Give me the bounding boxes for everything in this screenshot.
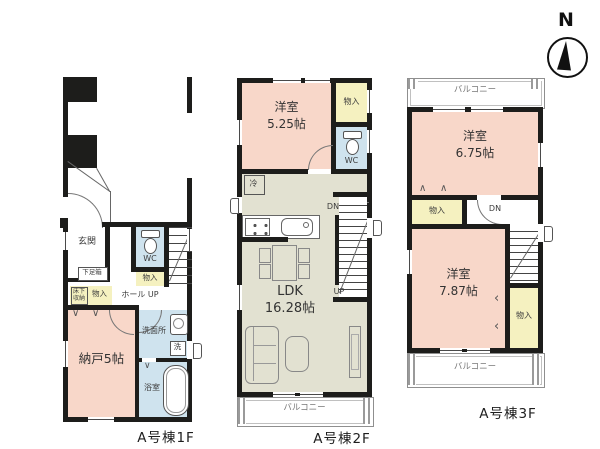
- toilet-icon: [343, 131, 362, 139]
- window: [407, 250, 412, 274]
- ldk-size: 16.28帖: [245, 302, 335, 317]
- window: [88, 417, 114, 422]
- exterior-door: [230, 198, 239, 214]
- folding-door-mark: ∨: [72, 309, 79, 319]
- balcony-label: バルコニー: [407, 86, 543, 96]
- bedroom-label: 洋室: [242, 101, 331, 115]
- floor2-name: A号棟2F: [312, 427, 372, 447]
- folding-door-mark: ∨: [92, 309, 99, 319]
- porch-line: [110, 191, 111, 222]
- exterior-door: [544, 226, 553, 242]
- folding-door-mark: ‹: [494, 292, 499, 305]
- wc-label: WC: [336, 156, 367, 165]
- hall-text: ホール: [121, 290, 145, 299]
- bedroom-675-size: 6.75帖: [412, 147, 538, 161]
- window: [273, 78, 301, 83]
- wall: [462, 200, 467, 224]
- down-label: DN: [483, 204, 507, 213]
- bedroom-675-label: 洋室: [412, 130, 538, 144]
- wall: [242, 237, 288, 242]
- hall-closet-label: 物入: [88, 290, 111, 299]
- window: [63, 232, 68, 250]
- door-opening: [367, 218, 372, 238]
- exterior-door: [193, 343, 202, 359]
- wc-label: WC: [136, 254, 164, 263]
- chair: [259, 248, 271, 263]
- closet2-label: 物入: [510, 311, 538, 320]
- sofa-back-line: [253, 327, 254, 381]
- chair: [298, 264, 310, 279]
- floor-plan-canvas: 玄関 下足箱 WC 物入 ホール UP 床下収納 物入 ∨ ∨ 納戸5帖 洗面所: [0, 0, 600, 449]
- exterior-door: [373, 220, 382, 236]
- window: [433, 107, 465, 112]
- up-text: UP: [148, 290, 159, 299]
- window: [471, 107, 503, 112]
- window: [237, 285, 242, 310]
- wall: [333, 297, 368, 302]
- underfloor-storage-label: 床下収納: [71, 288, 87, 302]
- bathroom-label: 浴室: [140, 383, 164, 392]
- window: [63, 341, 68, 367]
- window: [187, 229, 192, 251]
- faucet-icon: [303, 222, 309, 228]
- door-opening: [538, 224, 543, 242]
- sofa-cushion-line: [254, 363, 276, 364]
- window: [538, 143, 543, 167]
- balcony-label: バルコニー: [407, 363, 543, 373]
- compass: N: [543, 10, 589, 80]
- floor1-name: A号棟1F: [136, 426, 196, 446]
- window: [305, 78, 330, 83]
- shoe-box-label: 下足箱: [78, 269, 106, 276]
- down-label: DN: [321, 202, 345, 211]
- porch-line: [96, 168, 110, 192]
- washer-pan-drain: [173, 318, 184, 329]
- genkan-label: 玄関: [72, 237, 102, 247]
- sofa-cushion-line: [254, 345, 276, 346]
- balcony-label: バルコニー: [237, 404, 372, 414]
- floor2-plan: 洋室 5.25帖 物入 WC 冷 DN UP LDK 1: [235, 75, 385, 447]
- bedroom-size: 5.25帖: [242, 118, 331, 132]
- bathtub-inner: [166, 368, 186, 413]
- compass-needle-icon: [557, 41, 573, 71]
- washroom-label: 洗面所: [139, 326, 169, 335]
- wall: [63, 135, 97, 168]
- compass-north-label: N: [543, 10, 589, 32]
- door-opening: [187, 341, 192, 359]
- floor1-plan: 玄関 下足箱 WC 物入 ホール UP 床下収納 物入 ∨ ∨ 納戸5帖 洗面所: [60, 75, 205, 447]
- chair: [259, 264, 271, 279]
- wall: [501, 195, 543, 200]
- tv-board-inner: [351, 334, 359, 370]
- balcony-door-tick: [295, 393, 300, 396]
- dining-table: [272, 245, 297, 281]
- window: [367, 90, 372, 113]
- folding-door-mark: ∨: [144, 362, 151, 371]
- bedroom-787-label: 洋室: [412, 268, 505, 282]
- folding-door-mark: ∧: [419, 184, 426, 194]
- closet-label: 物入: [336, 97, 367, 106]
- coffee-table: [285, 336, 309, 372]
- wall: [187, 77, 192, 113]
- sofa: [245, 326, 279, 384]
- toilet-icon: [346, 139, 359, 155]
- balcony-door-tick: [462, 349, 467, 352]
- chair: [298, 248, 310, 263]
- wall: [187, 178, 192, 225]
- window: [237, 120, 242, 145]
- floor3-plan: バルコニー 洋室 6.75帖 物入 ∧ ∧ DN 洋室 7.87帖 物入: [405, 58, 555, 423]
- floor3-name: A号棟3F: [478, 402, 538, 422]
- closet1-label: 物入: [412, 206, 462, 215]
- hall-label: ホール UP: [112, 290, 168, 299]
- fridge-label: 冷: [244, 179, 263, 188]
- folding-door-mark: ‹: [494, 320, 499, 333]
- washer-label: 洗: [170, 343, 185, 352]
- toilet-icon: [141, 230, 160, 238]
- stove-icon: [245, 218, 270, 236]
- staircase: [339, 205, 367, 290]
- ldk-label: LDK: [245, 285, 335, 300]
- wall: [63, 417, 192, 422]
- window: [367, 130, 372, 153]
- wall: [63, 77, 97, 102]
- wc-closet-label: 物入: [136, 274, 164, 283]
- storage-room-label: 納戸5帖: [68, 352, 135, 366]
- bedroom-787-size: 7.87帖: [412, 285, 505, 299]
- entrance-door-arc: [68, 193, 103, 228]
- folding-door-mark: ∧: [440, 184, 447, 194]
- toilet-icon: [144, 238, 157, 254]
